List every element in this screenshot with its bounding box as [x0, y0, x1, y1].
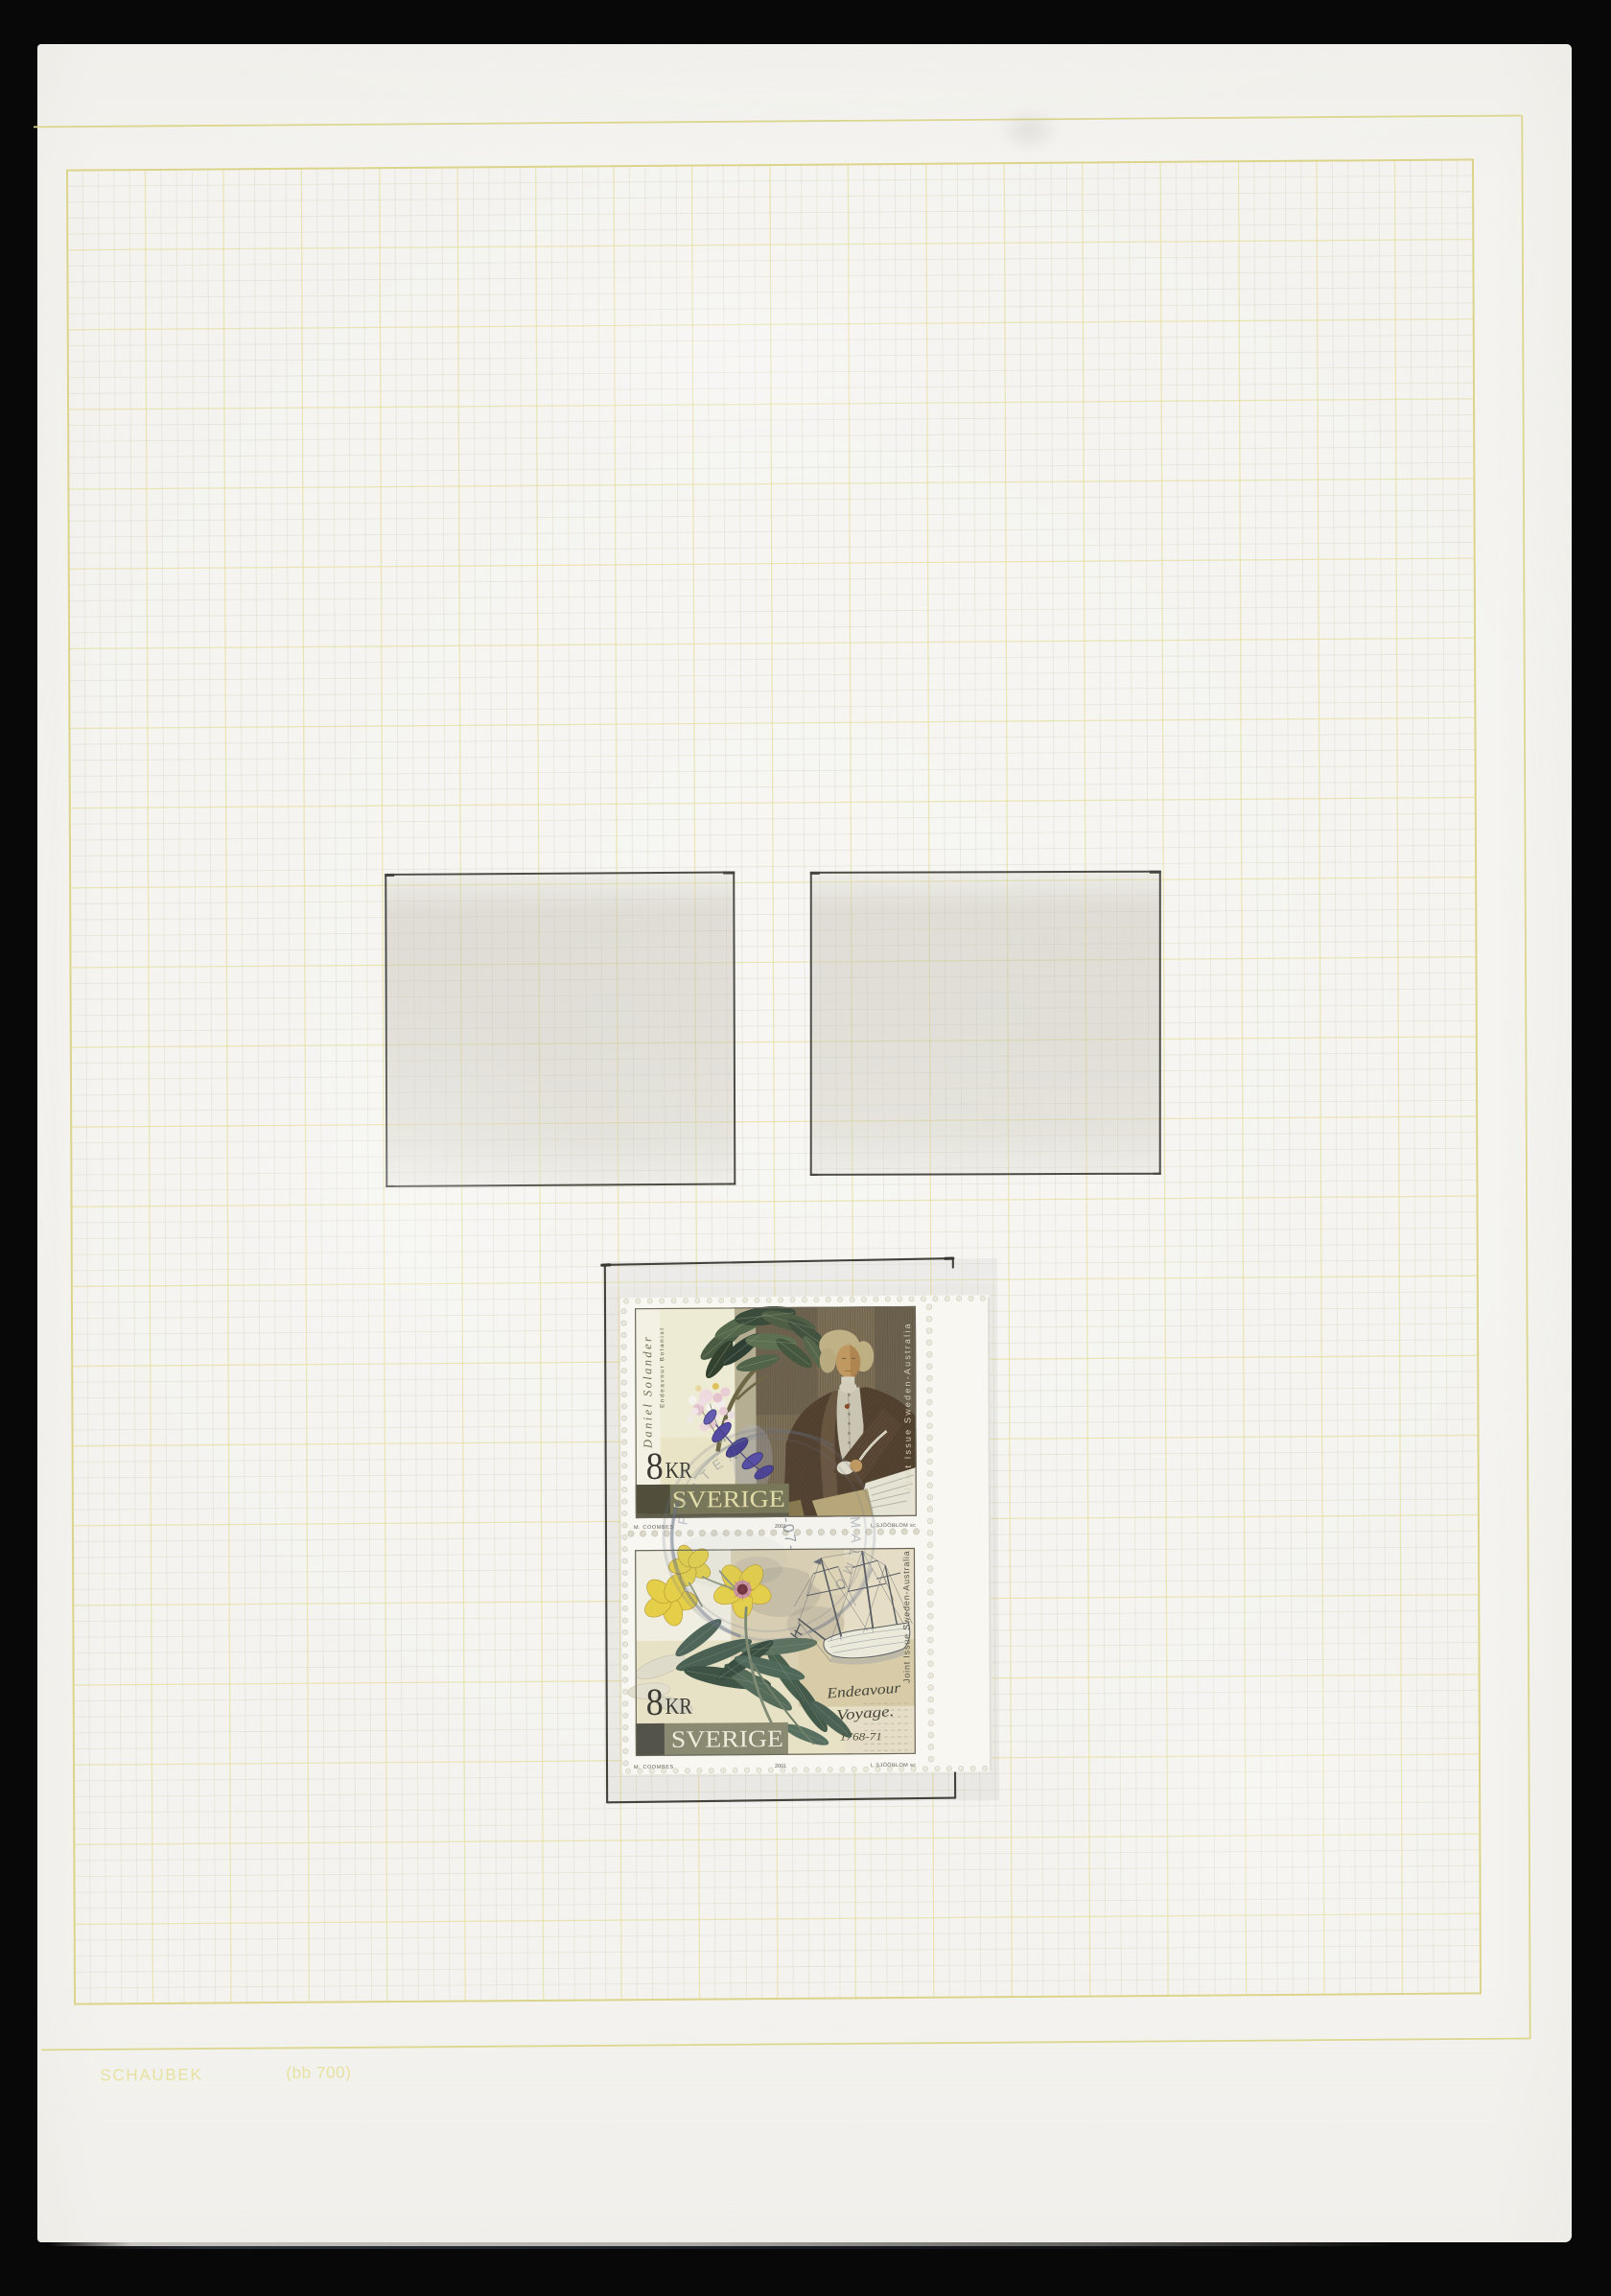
svg-text:SVERIGE: SVERIGE: [671, 1726, 783, 1753]
svg-text:L.SJÖÖBLOM sc: L.SJÖÖBLOM sc: [871, 1762, 916, 1769]
svg-text:M. COOMBES: M. COOMBES: [634, 1765, 674, 1770]
svg-text:Daniel Solander: Daniel Solander: [641, 1335, 654, 1449]
svg-text:Endeavour Botanist: Endeavour Botanist: [659, 1326, 665, 1408]
svg-text:KR: KR: [665, 1695, 692, 1720]
svg-text:1768-71: 1768-71: [840, 1731, 882, 1743]
svg-text:Joint Issue Sweden-Australia: Joint Issue Sweden-Australia: [901, 1550, 912, 1683]
svg-text:8: 8: [646, 1444, 664, 1488]
svg-text:2001: 2001: [775, 1764, 786, 1769]
svg-text:Joint Issue Sweden-Australia: Joint Issue Sweden-Australia: [902, 1322, 913, 1492]
svg-text:L.SJÖÖBLOM sc: L.SJÖÖBLOM sc: [871, 1522, 916, 1529]
svg-text:8: 8: [646, 1680, 664, 1723]
